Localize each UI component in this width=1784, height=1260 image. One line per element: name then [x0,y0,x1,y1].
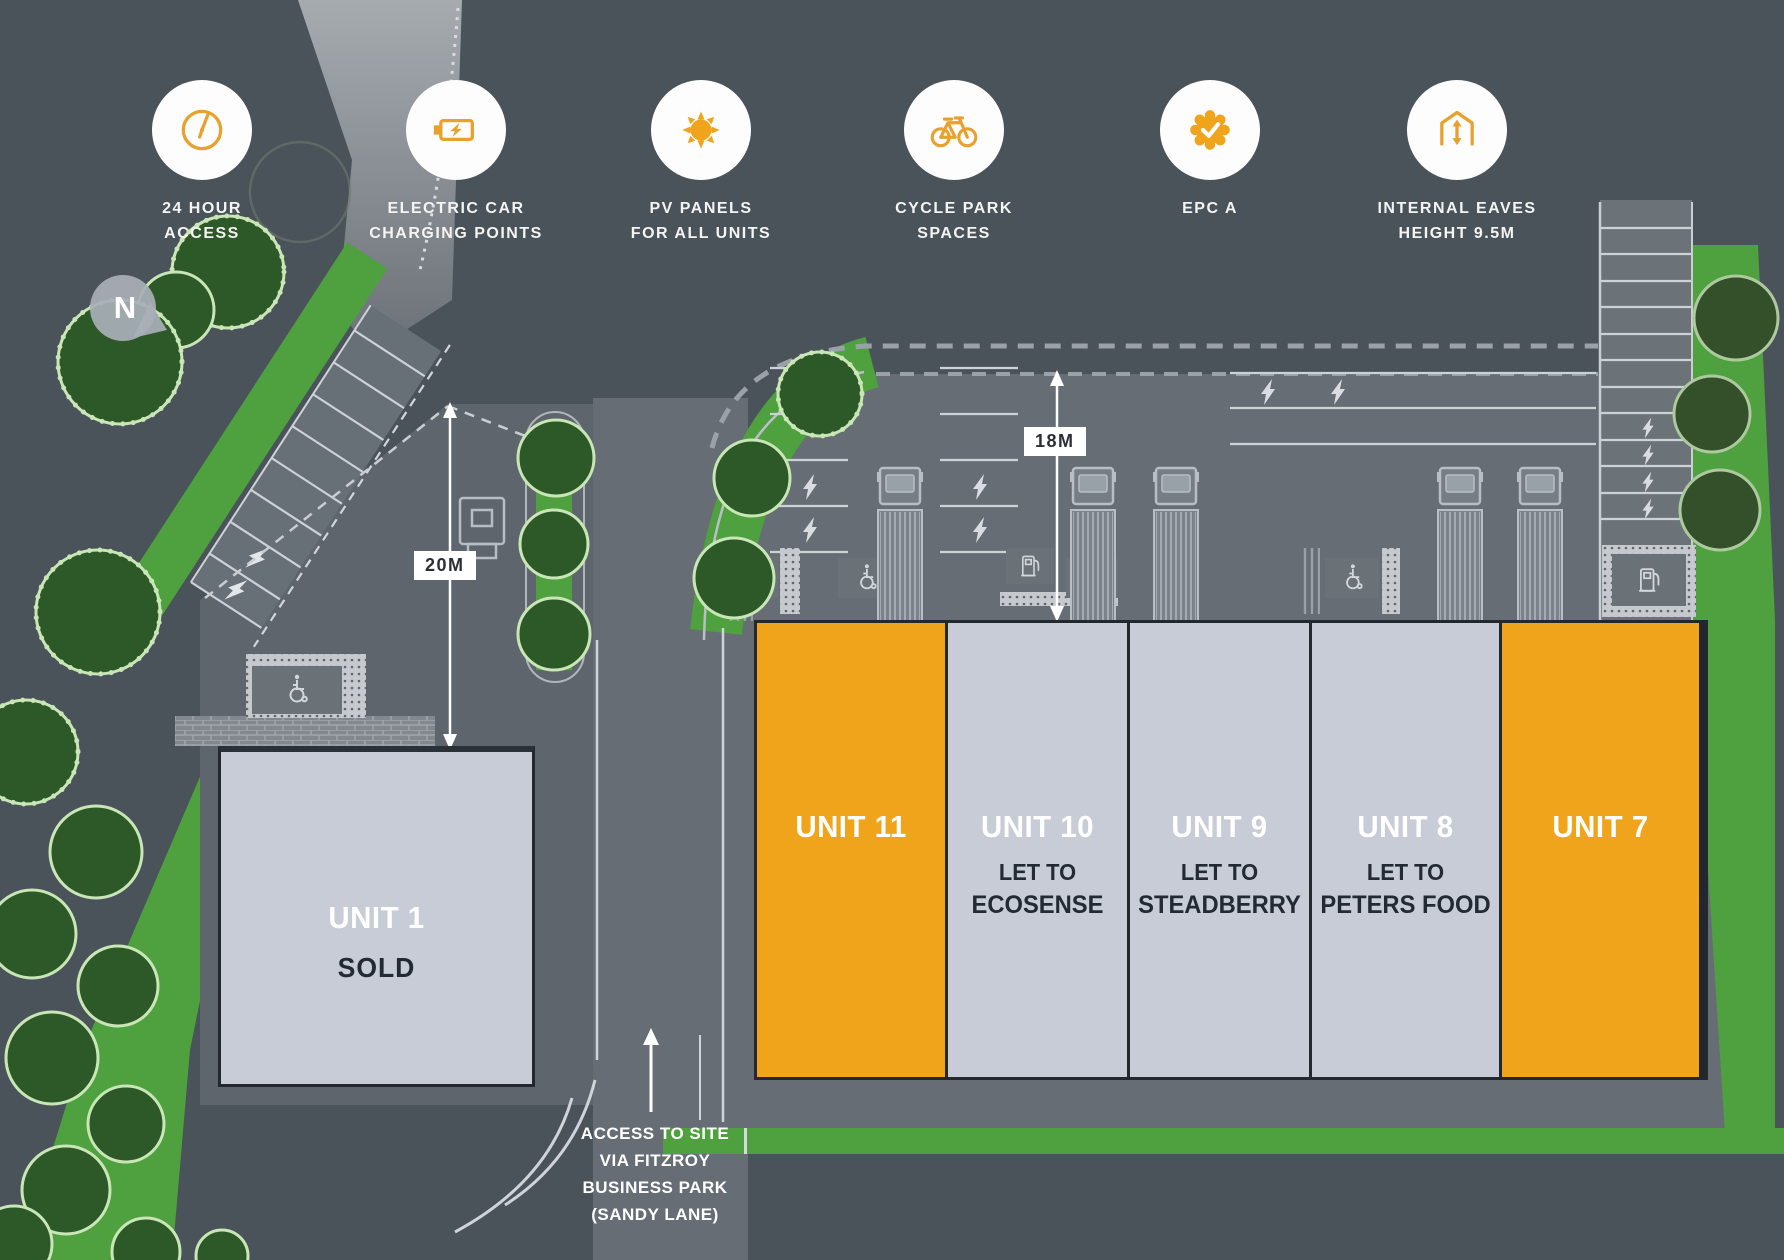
amenity-cycle-park: CYCLE PARKSPACES [824,68,1084,246]
unit-name: UNIT 7 [1507,809,1694,845]
rosette-icon [1160,80,1260,180]
truck-icon [1518,468,1562,622]
unit-terrace: UNIT 11 UNIT 10 LET TO ECOSENSE UNIT 9 L… [754,620,1708,1080]
amenity-label: INTERNAL EAVES [1327,196,1587,221]
clock-icon [152,80,252,180]
green-strip-bottom [663,1128,1784,1154]
paving-strip [175,716,435,746]
unit-let-label: LET TO [952,859,1122,886]
unit-name: UNIT 1 [229,900,524,936]
sun-icon [651,80,751,180]
amenity-24-hour-access: 24 HOURACCESS [72,68,332,246]
unit-11-building[interactable]: UNIT 11 [757,623,948,1077]
north-label: N [103,290,147,326]
unit-7-building[interactable]: UNIT 7 [1502,623,1699,1077]
unit-name: UNIT 9 [1134,809,1304,845]
amenity-pv-panels: PV PANELSFOR ALL UNITS [571,68,831,246]
dimension-18m-badge: 18M [1024,427,1086,456]
unit-9-building[interactable]: UNIT 9 LET TO STEADBERRY [1130,623,1312,1077]
unit-tenant: ECOSENSE [952,891,1122,920]
access-note: ACCESS TO SITE VIA FITZROY BUSINESS PARK… [560,1120,750,1228]
unit-tenant: STEADBERRY [1134,891,1304,920]
unit-name: UNIT 10 [952,809,1122,845]
amenity-eaves-height: INTERNAL EAVESHEIGHT 9.5M [1327,68,1587,246]
unit-name: UNIT 8 [1317,809,1495,845]
amenity-label: EPC A [1080,196,1340,221]
dimension-20m-badge: 20M [414,551,476,580]
amenity-label: PV PANELS [571,196,831,221]
site-plan: 24 HOURACCESS ELECTRIC CARCHARGING POINT… [0,0,1784,1260]
eaves-icon [1407,80,1507,180]
amenity-label: ELECTRIC CAR [326,196,586,221]
unit-let-label: LET TO [1317,859,1495,886]
truck-icon [1438,468,1482,622]
battery-icon [406,80,506,180]
truck-icon [1154,468,1198,622]
truck-icon [1071,468,1115,622]
amenity-label: CYCLE PARK [824,196,1084,221]
unit-10-building[interactable]: UNIT 10 LET TO ECOSENSE [948,623,1130,1077]
unit-8-building[interactable]: UNIT 8 LET TO PETERS FOOD [1312,623,1502,1077]
amenity-ev-charging: ELECTRIC CARCHARGING POINTS [326,68,586,246]
unit-1-building[interactable]: UNIT 1 SOLD [218,746,535,1087]
truck-icon [878,468,922,622]
unit-status: SOLD [229,952,524,984]
bicycle-icon [904,80,1004,180]
unit-let-label: LET TO [1134,859,1304,886]
amenity-label: 24 HOUR [72,196,332,221]
unit-name: UNIT 11 [762,809,941,845]
amenity-epc-a: EPC A [1080,68,1340,221]
unit-tenant: PETERS FOOD [1317,891,1495,920]
